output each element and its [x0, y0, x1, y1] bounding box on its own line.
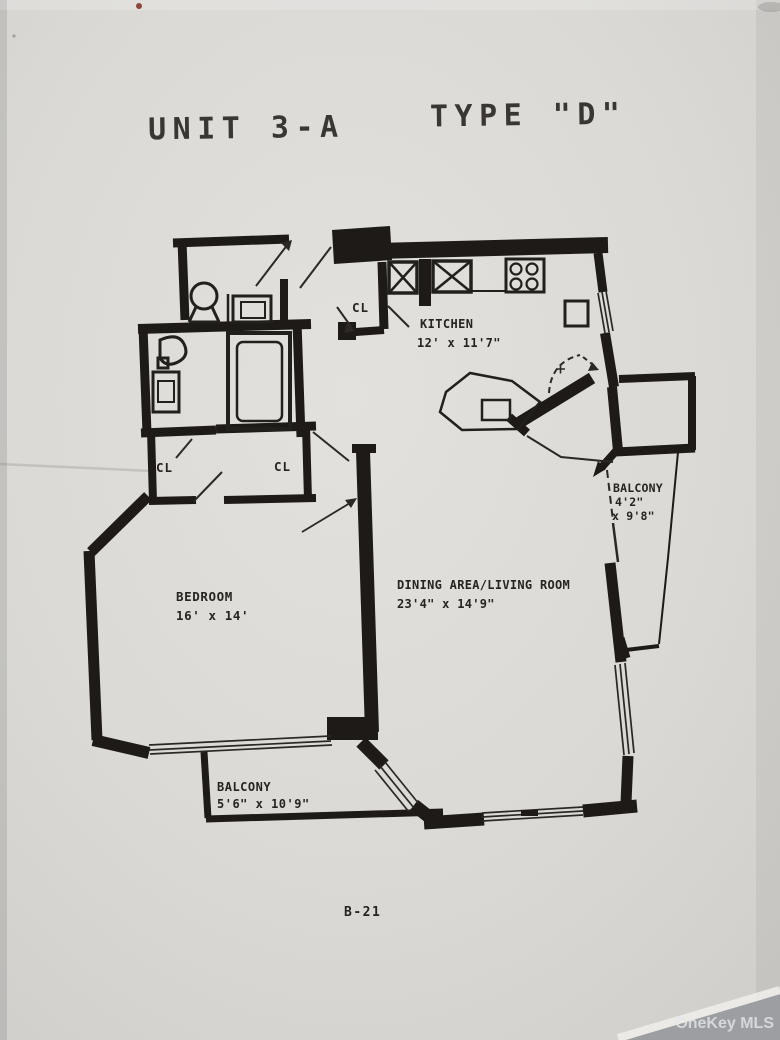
floor-plan-svg: UNIT 3-A TYPE "D" CL CL CL KITCHEN 12' x… [0, 0, 780, 1040]
bedroom-dims: 16' x 14' [176, 608, 249, 623]
balcony-bottom-label: BALCONY [217, 780, 271, 794]
balcony-right-dims-1: 4'2" [615, 495, 644, 509]
bedroom-label: BEDROOM [176, 589, 233, 604]
entry-closet-label: CL [352, 300, 369, 315]
floorplan-photo: UNIT 3-A TYPE "D" CL CL CL KITCHEN 12' x… [0, 0, 780, 1040]
kitchen-label: KITCHEN [420, 317, 473, 331]
balcony-bottom-dims: 5'6" x 10'9" [217, 797, 310, 811]
balcony-right-dims-2: x 9'8" [612, 509, 655, 523]
mls-watermark: OneKey MLS [675, 1015, 774, 1032]
balcony-right-label: BALCONY [613, 481, 663, 495]
dining-living-label: DINING AREA/LIVING ROOM [397, 578, 570, 592]
kitchen-dims: 12' x 11'7" [417, 336, 501, 350]
drawing-number: B-21 [344, 905, 381, 920]
red-speck [136, 3, 142, 9]
type-title: TYPE "D" [430, 97, 627, 135]
dining-living-dims: 23'4" x 14'9" [397, 597, 495, 611]
hall-closet-left-label: CL [156, 460, 173, 475]
hall-closet-right-label: CL [274, 459, 291, 474]
unit-title: UNIT 3-A [148, 110, 345, 148]
